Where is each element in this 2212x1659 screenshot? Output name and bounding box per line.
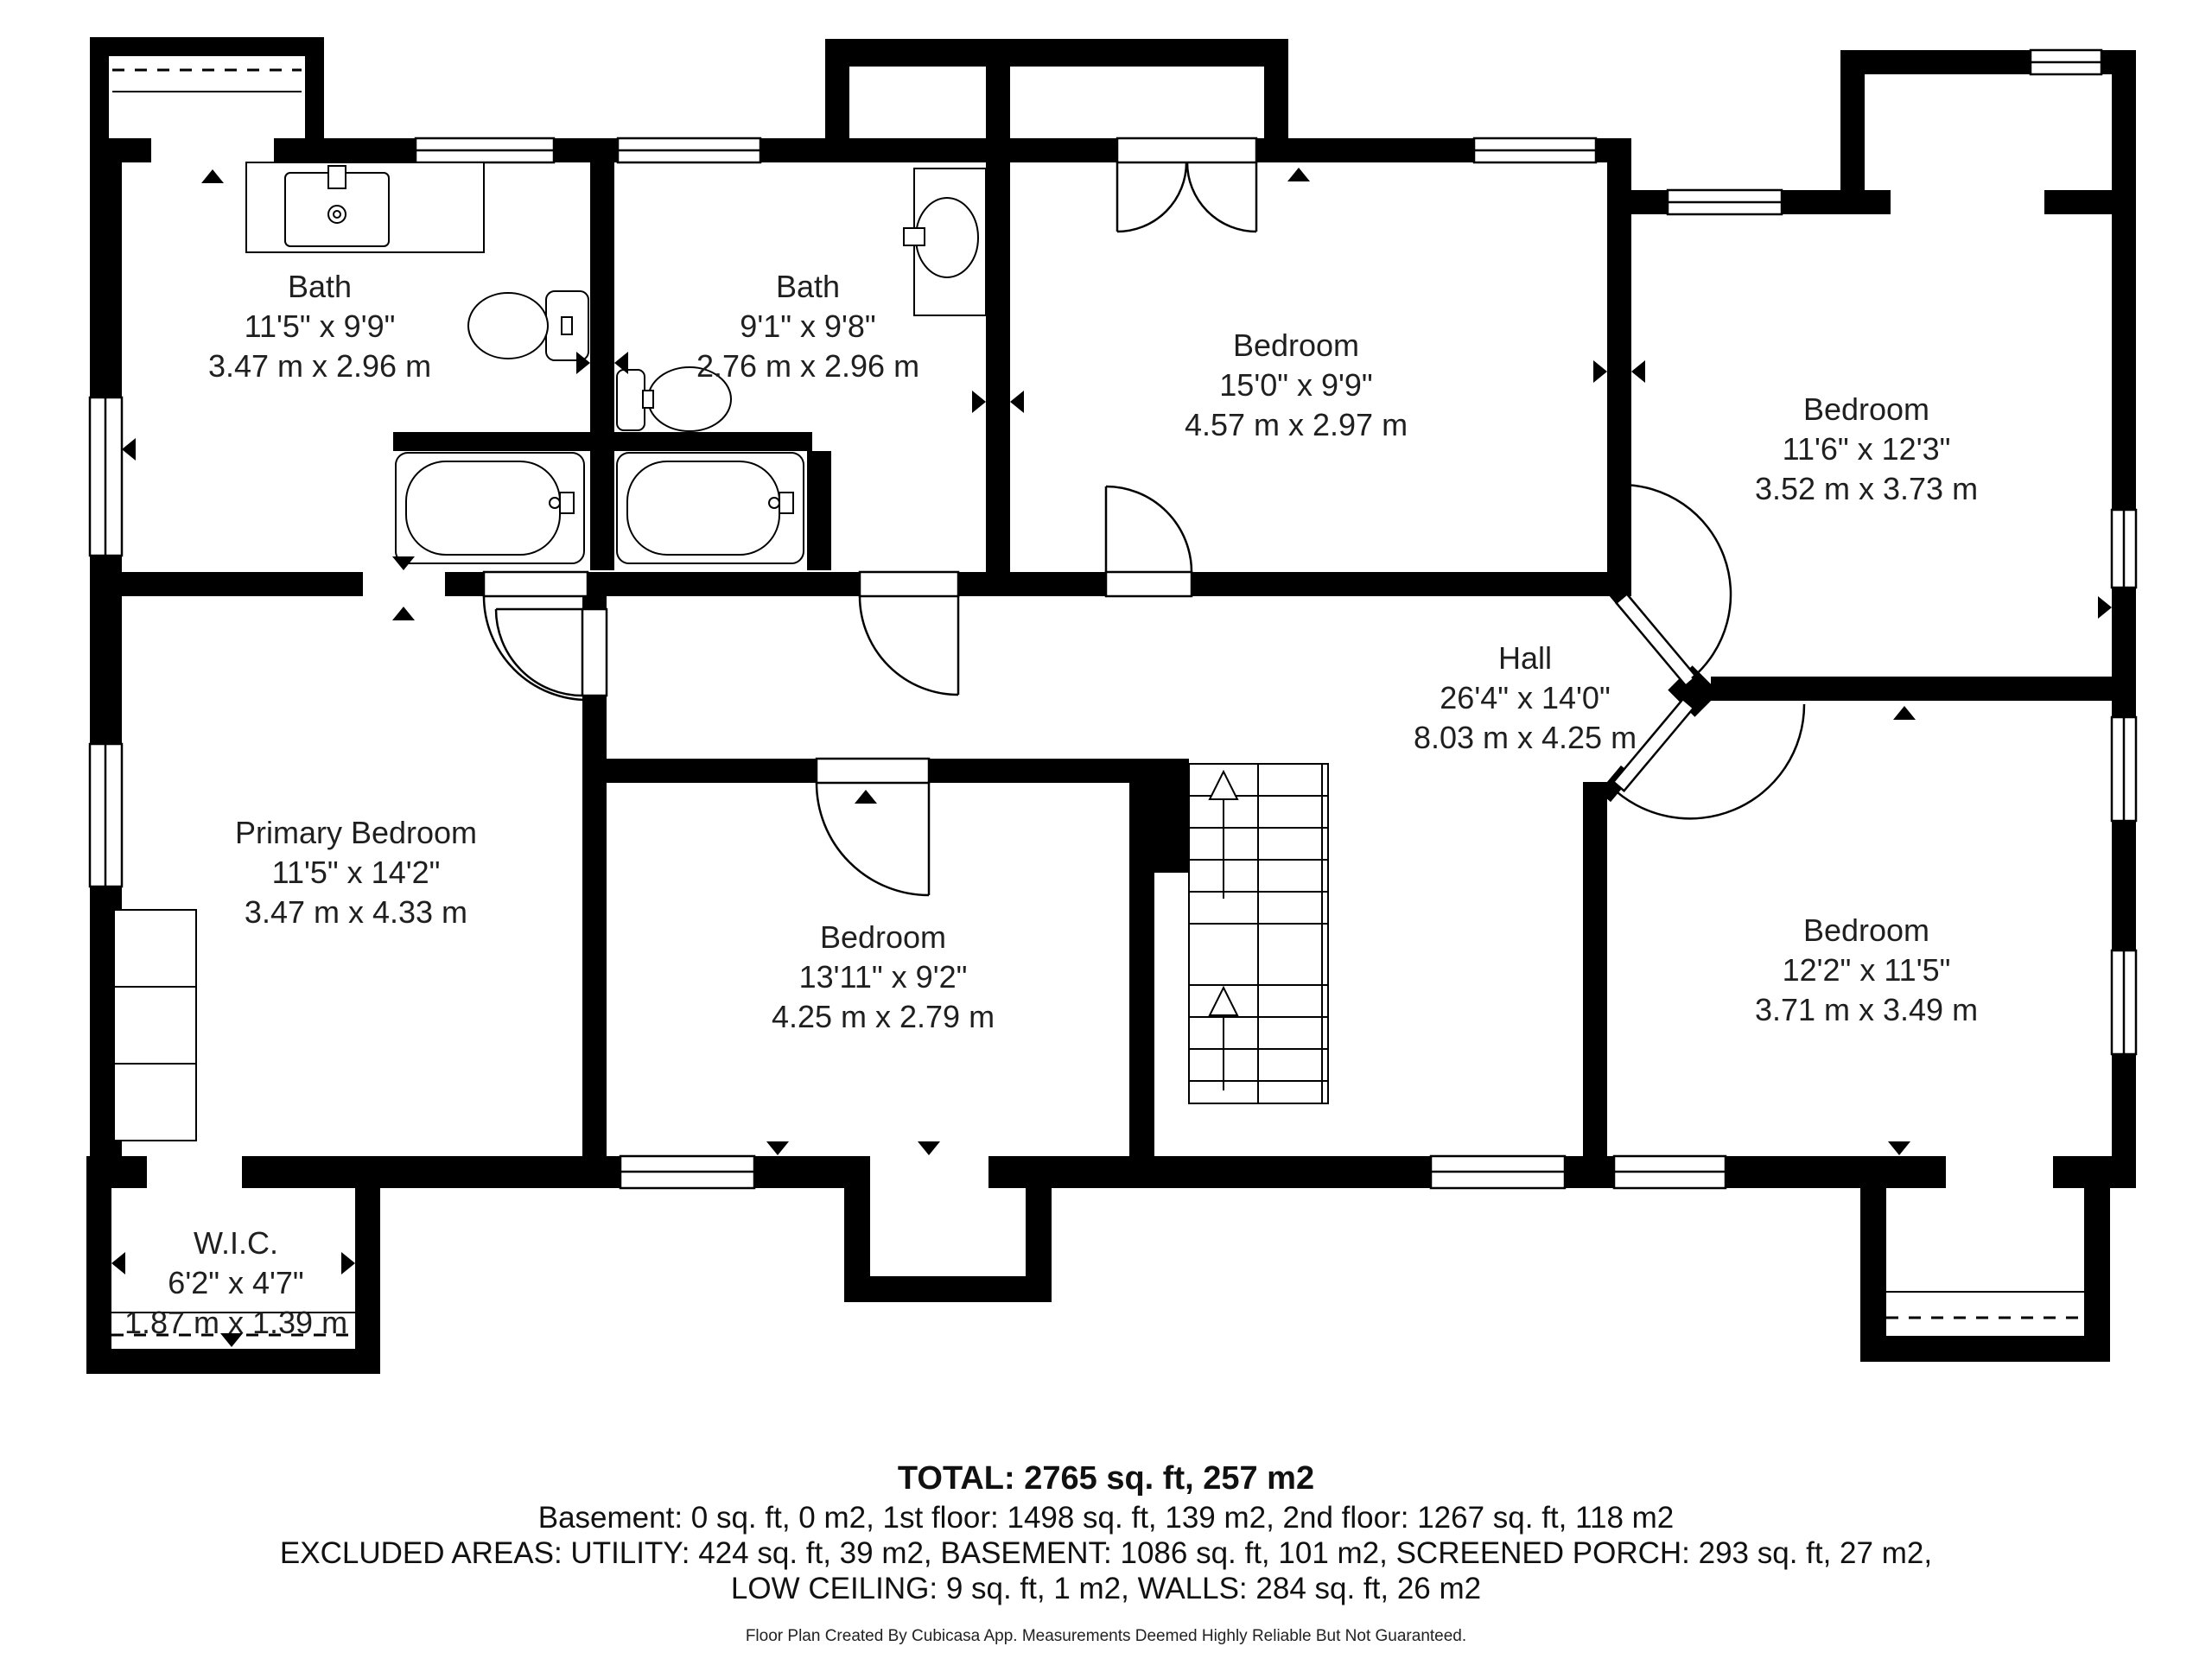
door-mid-bedroom xyxy=(817,759,929,895)
room-dim-imperial: 11'6" x 12'3" xyxy=(1755,429,1978,469)
window-top-bedroom1 xyxy=(1474,138,1596,162)
room-dim-imperial: 15'0" x 9'9" xyxy=(1185,365,1408,405)
footer-disclaimer: Floor Plan Created By Cubicasa App. Meas… xyxy=(0,1627,2212,1646)
room-label-hall: Hall 26'4" x 14'0" 8.03 m x 4.25 m xyxy=(1414,639,1637,758)
room-label-bedroom-bottom-right: Bedroom 12'2" x 11'5" 3.71 m x 3.49 m xyxy=(1755,911,1978,1030)
room-dim-metric: 3.47 m x 4.33 m xyxy=(235,893,477,932)
room-dim-metric: 2.76 m x 2.96 m xyxy=(696,346,919,386)
window-top-bath1 xyxy=(416,138,554,162)
door-bath2 xyxy=(860,572,958,695)
room-name: Bedroom xyxy=(1755,390,1978,429)
bathtub-bath2 xyxy=(617,453,804,563)
room-name: Bedroom xyxy=(1755,911,1978,950)
summary-total: TOTAL: 2765 sq. ft, 257 m2 xyxy=(0,1457,2212,1500)
window-bottom-hall-1 xyxy=(1431,1156,1565,1188)
room-dim-imperial: 11'5" x 14'2" xyxy=(235,853,477,893)
window-right-3 xyxy=(2112,950,2136,1054)
room-name: W.I.C. xyxy=(124,1224,347,1263)
room-dim-imperial: 13'11" x 9'2" xyxy=(772,957,995,997)
room-dim-metric: 3.47 m x 2.96 m xyxy=(208,346,431,386)
room-name: Primary Bedroom xyxy=(235,813,477,853)
door-primary xyxy=(496,609,607,696)
toilet-bath1 xyxy=(468,291,588,360)
door-bedroom-br xyxy=(1610,699,1804,818)
room-dim-metric: 4.57 m x 2.97 m xyxy=(1185,405,1408,445)
room-dim-metric: 3.52 m x 3.73 m xyxy=(1755,469,1978,509)
room-dim-imperial: 26'4" x 14'0" xyxy=(1414,678,1637,718)
room-dim-metric: 8.03 m x 4.25 m xyxy=(1414,718,1637,758)
room-label-bath-2: Bath 9'1" x 9'8" 2.76 m x 2.96 m xyxy=(696,267,919,386)
room-dim-metric: 1.87 m x 1.39 m xyxy=(124,1303,347,1343)
window-right-2 xyxy=(2112,717,2136,821)
window-left-primary xyxy=(90,744,122,887)
window-left-bath xyxy=(90,397,122,556)
room-label-bath-1: Bath 11'5" x 9'9" 3.47 m x 2.96 m xyxy=(208,267,431,386)
window-bottom-hall-2 xyxy=(1614,1156,1726,1188)
primary-closet xyxy=(114,910,196,1141)
room-dim-metric: 4.25 m x 2.79 m xyxy=(772,997,995,1037)
room-name: Hall xyxy=(1414,639,1637,678)
room-label-bedroom-top: Bedroom 15'0" x 9'9" 4.57 m x 2.97 m xyxy=(1185,326,1408,445)
room-name: Bedroom xyxy=(772,918,995,957)
window-bottom-midbedroom xyxy=(620,1156,754,1188)
room-label-bedroom-top-right: Bedroom 11'6" x 12'3" 3.52 m x 3.73 m xyxy=(1755,390,1978,509)
room-name: Bath xyxy=(696,267,919,307)
summary-excluded-2: LOW CEILING: 9 sq. ft, 1 m2, WALLS: 284 … xyxy=(0,1571,2212,1606)
room-dim-imperial: 9'1" x 9'8" xyxy=(696,307,919,346)
floor-plan-page: Bath 11'5" x 9'9" 3.47 m x 2.96 m Bath 9… xyxy=(0,0,2212,1659)
bathtub-bath1 xyxy=(396,453,584,563)
porch-railing-lines xyxy=(111,70,2084,1335)
room-dim-imperial: 12'2" x 11'5" xyxy=(1755,950,1978,990)
room-label-bedroom-middle: Bedroom 13'11" x 9'2" 4.25 m x 2.79 m xyxy=(772,918,995,1037)
room-name: Bedroom xyxy=(1185,326,1408,365)
window-block-c xyxy=(2031,50,2101,74)
room-label-wic: W.I.C. 6'2" x 4'7" 1.87 m x 1.39 m xyxy=(124,1224,347,1343)
room-dim-metric: 3.71 m x 3.49 m xyxy=(1755,990,1978,1030)
window-top-bath2 xyxy=(618,138,760,162)
room-name: Bath xyxy=(208,267,431,307)
room-label-primary-bedroom: Primary Bedroom 11'5" x 14'2" 3.47 m x 4… xyxy=(235,813,477,932)
window-top-bedroom-tr xyxy=(1668,190,1782,214)
door-french-bedroom1 xyxy=(1117,138,1256,232)
staircase xyxy=(1189,764,1328,1103)
room-dim-imperial: 6'2" x 4'7" xyxy=(124,1263,347,1303)
room-dim-imperial: 11'5" x 9'9" xyxy=(208,307,431,346)
summary-floors: Basement: 0 sq. ft, 0 m2, 1st floor: 149… xyxy=(0,1500,2212,1535)
sink-bath1 xyxy=(246,162,484,252)
summary-block: TOTAL: 2765 sq. ft, 257 m2 Basement: 0 s… xyxy=(0,1457,2212,1646)
summary-excluded-1: EXCLUDED AREAS: UTILITY: 424 sq. ft, 39 … xyxy=(0,1535,2212,1571)
window-right-1 xyxy=(2112,510,2136,588)
door-bedroom1 xyxy=(1106,486,1192,596)
